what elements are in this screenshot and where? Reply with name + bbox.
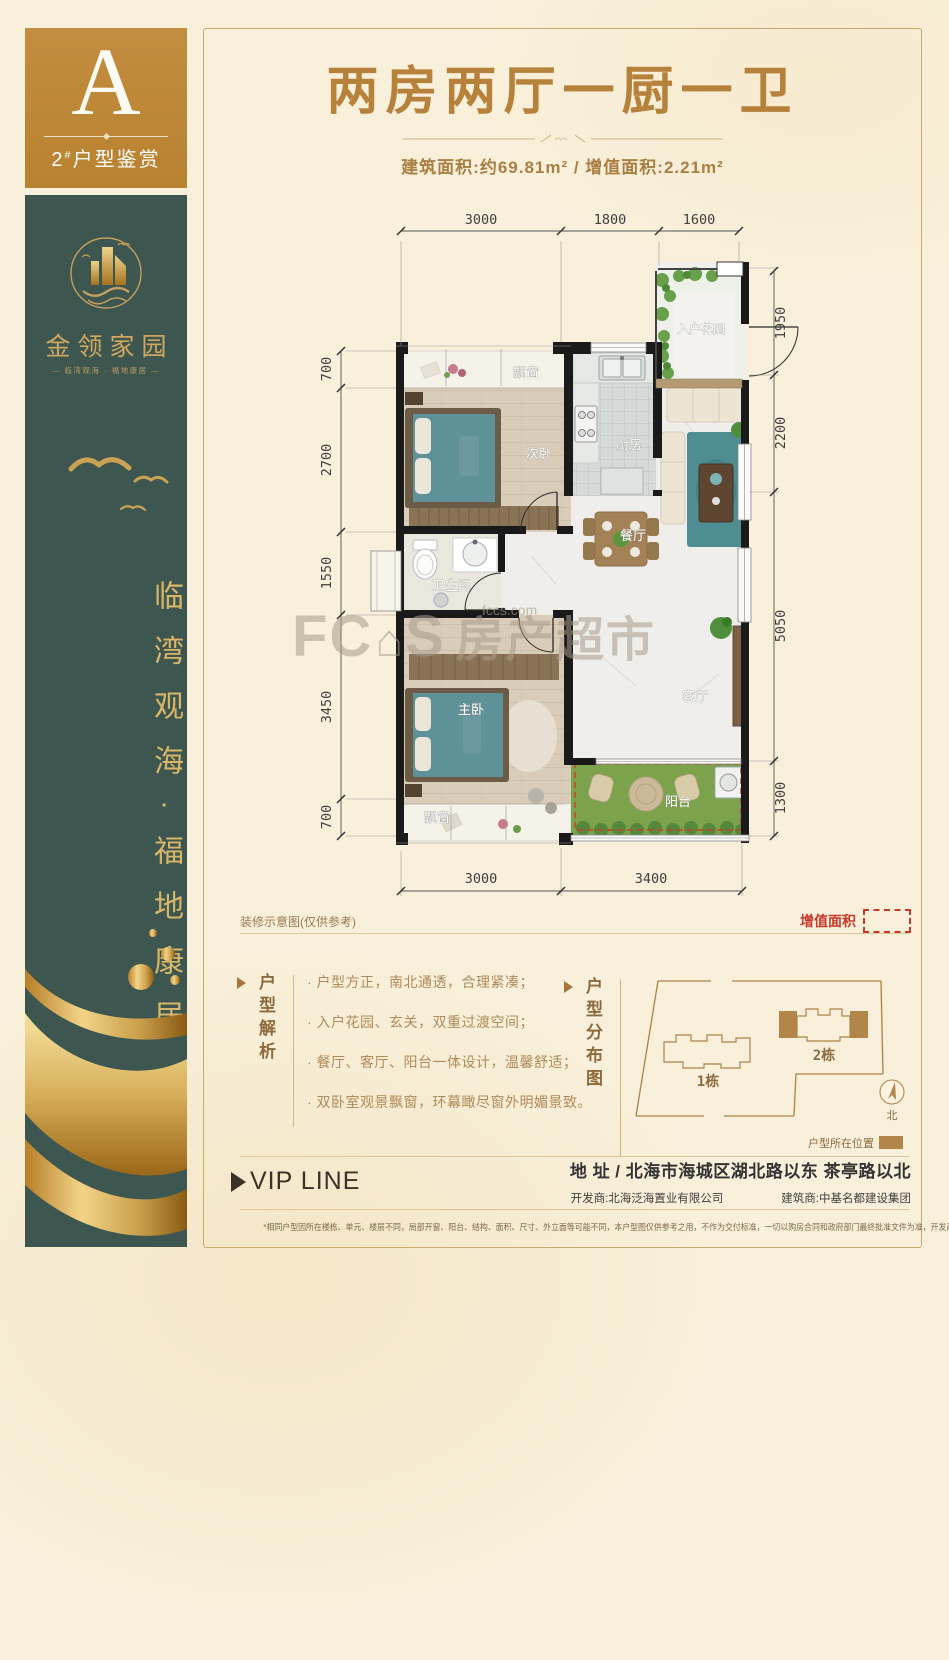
svg-text:3000: 3000	[465, 212, 498, 228]
sofa-side	[661, 432, 685, 524]
svg-text:3400: 3400	[635, 871, 668, 887]
section-arrow-icon	[237, 977, 246, 989]
analysis-bullet: · 双卧室观景飘窗，环幕瞰尽窗外明媚景致。	[307, 1094, 607, 1111]
svg-text:1600: 1600	[683, 212, 716, 228]
bathroom-window	[371, 551, 401, 611]
main-panel: 两房两厅一厨一卫 建筑面积:约69.81m² / 增值面积:2.21m²	[203, 28, 922, 1248]
svg-text:1300: 1300	[773, 782, 789, 815]
address-block: 地 址 / 北海市海城区湖北路以东 茶亭路以北 开发商:北海泛海置业有限公司 建…	[570, 1157, 911, 1206]
room-label-entry-garden: 入户花园	[677, 321, 725, 336]
divider	[240, 1209, 909, 1210]
added-area-swatch-icon	[863, 909, 911, 933]
building-2-outline	[797, 1009, 850, 1041]
threshold	[656, 379, 742, 388]
svg-text:2200: 2200	[773, 417, 789, 450]
compass-icon	[880, 1080, 904, 1104]
svg-text:700: 700	[319, 805, 335, 829]
svg-text:1800: 1800	[594, 212, 627, 228]
room-label-kitchen: 厨房	[616, 437, 642, 453]
analysis-bullet: · 餐厅、客厅、阳台一体设计，温馨舒适；	[307, 1054, 607, 1071]
gold-wave-decor	[25, 917, 187, 1247]
stove	[575, 406, 597, 442]
analysis-title: 户型解析	[253, 973, 278, 1065]
section-arrow-icon	[564, 981, 573, 993]
vip-line-label: VIP LINE	[250, 1167, 360, 1196]
room-label-living: 客厅	[682, 689, 708, 705]
svg-text:1550: 1550	[319, 557, 335, 590]
address-value: 北海市海城区湖北路以东 茶亭路以北	[626, 1162, 911, 1181]
floorplan-drawing: 3000 1800 1600 3000 3400 700 2700 1550 3…	[301, 196, 811, 901]
divider	[240, 933, 909, 934]
brand-tagline: — 临湾观海 · 福地康居 —	[25, 365, 187, 376]
unit-location-label: 户型所在位置	[808, 1136, 874, 1150]
wardrobe-master	[409, 654, 559, 680]
unit-letter: A	[25, 30, 187, 134]
builder: 建筑商:中基名都建设集团	[781, 1190, 911, 1206]
address-label: 地 址 /	[570, 1162, 621, 1181]
coffee-table	[699, 464, 733, 522]
badge-divider	[44, 136, 168, 137]
title-ornament	[403, 132, 723, 146]
distribution-title: 户型分布图	[580, 977, 605, 1092]
area-summary: 建筑面积:约69.81m² / 增值面积:2.21m²	[204, 153, 921, 178]
room-label-bay-bottom: 飘窗	[424, 810, 450, 826]
svg-text:2700: 2700	[319, 444, 335, 477]
unit-caption-text: 户型鉴赏	[73, 149, 161, 171]
sofa-main	[667, 388, 745, 422]
north-label: 北	[887, 1109, 898, 1122]
building-2-label: 2栋	[813, 1047, 835, 1064]
site-boundary	[636, 981, 883, 1116]
bathroom-sink	[463, 542, 487, 566]
brand-name: 金领家园	[25, 327, 187, 363]
room-label-bathroom: 卫生间	[431, 579, 470, 594]
sidebar-brand-column: 金领家园 — 临湾观海 · 福地康居 — 临湾观海·福地康居	[25, 195, 187, 1247]
unit-location-swatch-icon	[879, 1136, 903, 1149]
building-1-outline	[664, 1035, 750, 1068]
svg-text:1950: 1950	[773, 307, 789, 340]
analysis-bullet: · 入户花园、玄关，双重过渡空间；	[307, 1014, 607, 1031]
unit-caption-hash: #	[65, 149, 73, 161]
building-1-label: 1栋	[697, 1073, 719, 1090]
unit-highlight	[779, 1011, 797, 1038]
developer: 开发商:北海泛海置业有限公司	[571, 1190, 724, 1206]
room-label-master-bedroom: 主卧	[458, 703, 484, 718]
fridge	[601, 468, 643, 494]
unit-type-badge: A 2#户型鉴赏	[25, 28, 187, 188]
analysis-bullets: · 户型方正，南北通透，合理紧凑； · 入户花园、玄关，双重过渡空间； · 餐厅…	[307, 973, 607, 1134]
room-label-bay-top: 飘窗	[513, 365, 539, 381]
brand-logo-icon	[58, 229, 154, 325]
birds-icon	[63, 451, 173, 531]
decor-note: 装修示意图(仅供参考)	[240, 913, 356, 930]
added-area-label: 增值面积	[800, 911, 856, 931]
unit-highlight	[850, 1011, 868, 1038]
analysis-bullet: · 户型方正，南北通透，合理紧凑；	[307, 974, 607, 991]
disclaimer: *相同户型因所在楼栋、单元、楼层不同，局部开窗、阳台、结构、面积、尺寸、外立面等…	[263, 1221, 885, 1233]
vip-line: VIP LINE	[231, 1167, 360, 1196]
vip-arrow-icon	[231, 1172, 246, 1192]
svg-text:3450: 3450	[319, 691, 335, 724]
room-label-second-bedroom: 次卧	[526, 446, 552, 462]
page-title: 两房两厅一厨一卫	[204, 67, 921, 119]
unit-caption-number: 2	[51, 149, 64, 171]
svg-text:3000: 3000	[465, 871, 498, 887]
room-label-balcony: 阳台	[665, 795, 691, 810]
site-plan: 1栋 2栋 北 户型所在位置	[616, 959, 918, 1164]
added-area-legend: 增值面积	[800, 909, 911, 933]
svg-text:5050: 5050	[773, 610, 789, 643]
section-divider	[293, 975, 294, 1127]
unit-caption: 2#户型鉴赏	[25, 143, 187, 172]
address-line: 地 址 / 北海市海城区湖北路以东 茶亭路以北	[570, 1157, 911, 1182]
svg-text:700: 700	[319, 357, 335, 381]
poster-page: A 2#户型鉴赏 金领家园 — 临湾观海 · 福地康居 —	[0, 0, 949, 1280]
room-label-dining: 餐厅	[620, 528, 646, 544]
diamond-ornament	[102, 133, 109, 140]
